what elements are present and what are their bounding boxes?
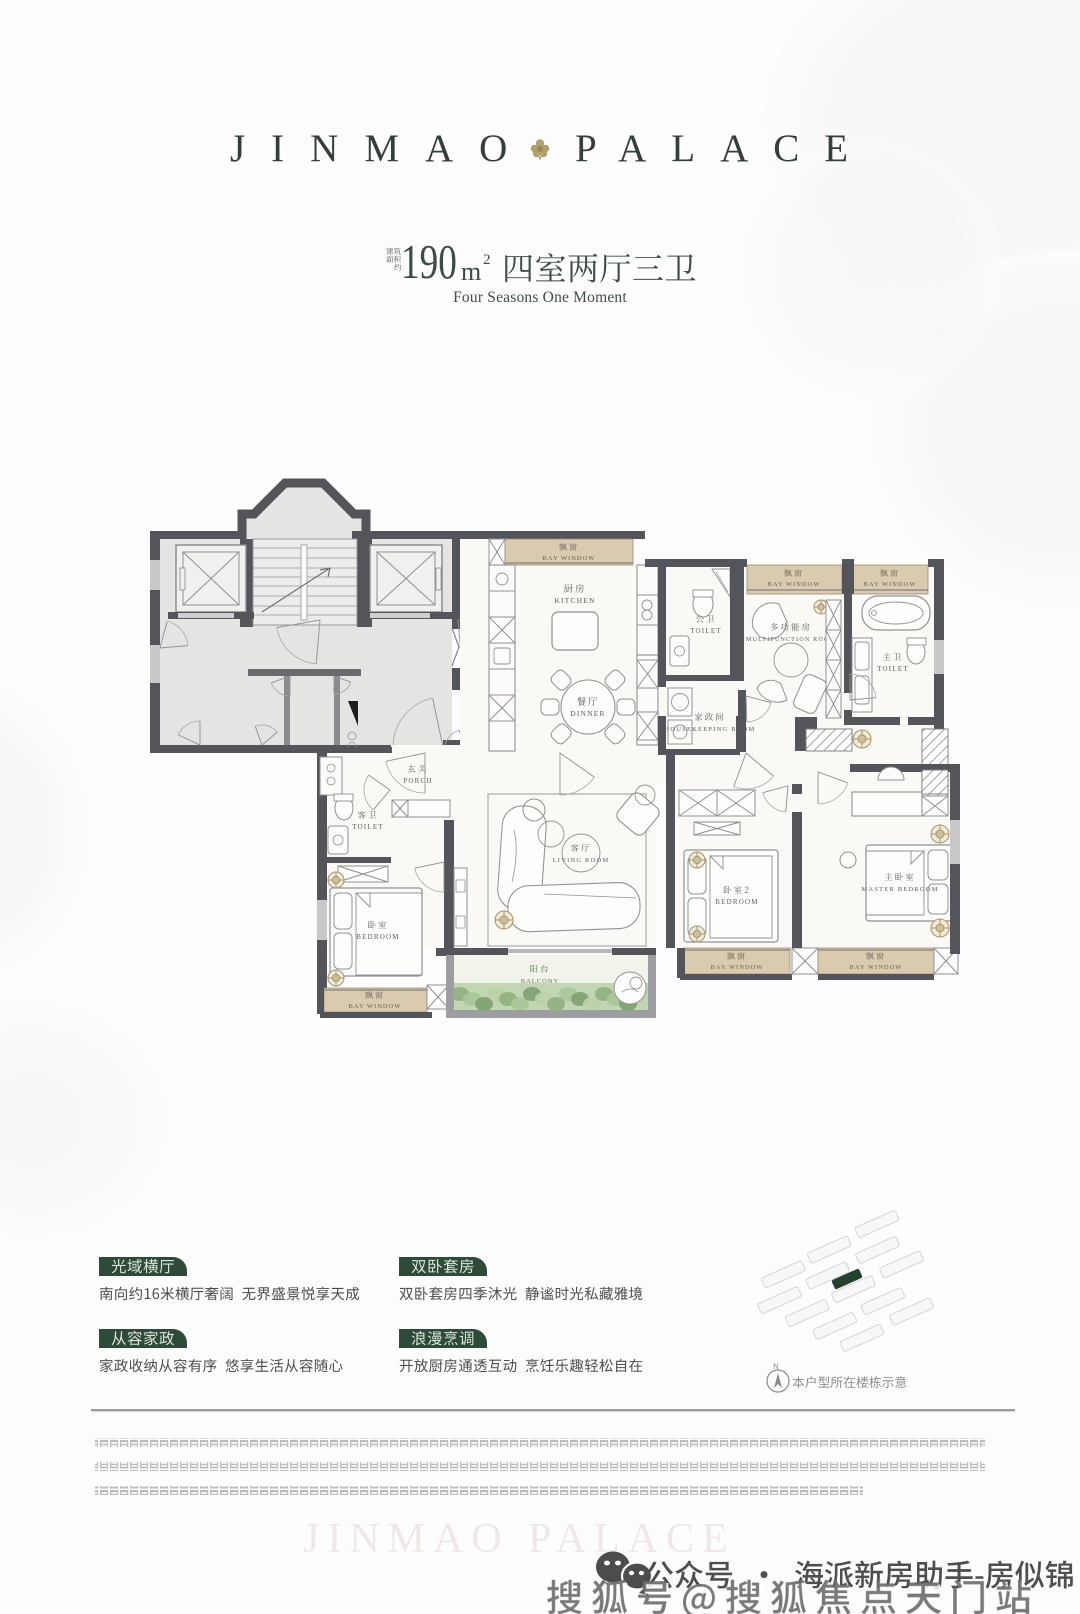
svg-text:BAY WINDOW: BAY WINDOW [711, 964, 764, 971]
svg-text:BAY WINDOW: BAY WINDOW [768, 581, 821, 588]
svg-text:JINMAO: JINMAO [230, 127, 533, 170]
svg-text:BEDROOM: BEDROOM [356, 933, 399, 941]
svg-text:TOILET: TOILET [690, 627, 722, 635]
svg-text:BAY WINDOW: BAY WINDOW [864, 581, 917, 588]
svg-text:2: 2 [483, 252, 491, 268]
svg-text:BAY WINDOW: BAY WINDOW [543, 555, 596, 562]
svg-text:MASTER BEDROOM: MASTER BEDROOM [861, 886, 938, 893]
svg-text:Four Seasons One Moment: Four Seasons One Moment [453, 289, 627, 306]
svg-text:LIVING ROOM: LIVING ROOM [553, 857, 610, 864]
svg-text:BALCONY: BALCONY [521, 978, 559, 985]
svg-text:190: 190 [401, 235, 457, 289]
svg-text:PORCH: PORCH [403, 777, 432, 785]
svg-text:BEDROOM: BEDROOM [715, 898, 758, 906]
svg-text:DINNER: DINNER [570, 709, 606, 718]
svg-text:JINMAO PALACE: JINMAO PALACE [303, 1516, 736, 1562]
svg-text:m: m [461, 257, 481, 286]
svg-text:TOILET: TOILET [352, 823, 384, 831]
svg-text:TOILET: TOILET [877, 665, 909, 673]
svg-text:KITCHEN: KITCHEN [554, 596, 595, 605]
svg-text:MULTIFUNCTION ROOM: MULTIFUNCTION ROOM [746, 637, 836, 643]
svg-text:PALACE: PALACE [575, 127, 873, 170]
svg-text:BAY WINDOW: BAY WINDOW [850, 964, 903, 971]
svg-text:BAY WINDOW: BAY WINDOW [349, 1003, 402, 1010]
